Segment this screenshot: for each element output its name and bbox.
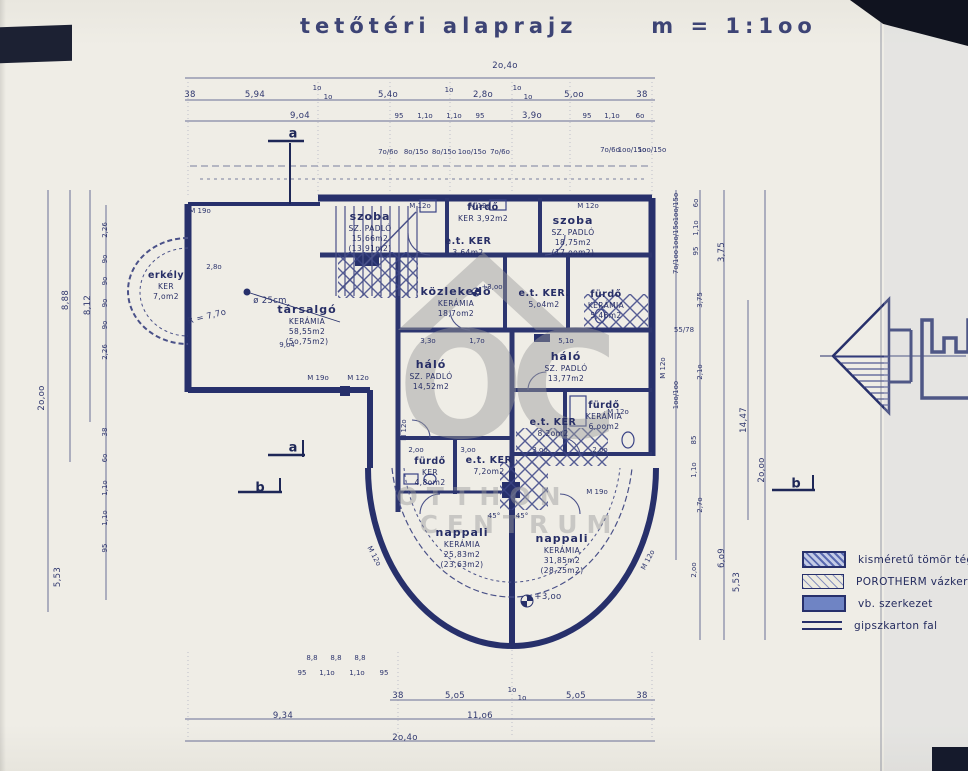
- room-label-furdo-mid: fürdőKERÁMIA5,46m2: [588, 289, 624, 321]
- dim: 38: [184, 90, 195, 100]
- room-label-furdo-bottom: fürdőKER4,8om2: [414, 456, 445, 488]
- dim: 95: [692, 247, 700, 256]
- window-size: 8o/15o: [404, 148, 428, 156]
- dim: 1,1o: [349, 669, 364, 677]
- room-label-et-right: e.t. KER8,2om2: [530, 417, 577, 439]
- dim: 8,8: [330, 654, 341, 662]
- dim: 3,75: [717, 242, 727, 262]
- wall-mark: M 19o: [586, 488, 607, 496]
- room-label-tarsalgo: társalgóKERÁMIA58,55m2(5o,75m2): [277, 303, 336, 347]
- dim: 95: [395, 112, 404, 120]
- dim: 9o: [101, 255, 109, 264]
- legend-label: POROTHERM vázkerámia: [856, 576, 968, 588]
- dim: 8,8: [354, 654, 365, 662]
- dim: 2o,oo: [37, 385, 47, 410]
- wall-mark: M 19o: [189, 207, 210, 215]
- dim: 38: [636, 691, 647, 701]
- dim: 1o: [508, 686, 517, 694]
- dim: 3,oo: [460, 446, 475, 454]
- dim: 1o: [324, 93, 333, 101]
- dim: 6,o9: [717, 548, 727, 568]
- scan-artifact-top-left: [0, 25, 72, 64]
- window-size: 1oo/15o: [458, 148, 487, 156]
- dim: 6o: [636, 112, 645, 120]
- wall-mark: M 19o: [307, 374, 328, 382]
- dim: 2,1o: [696, 364, 704, 379]
- scan-artifact-bottom-right: [932, 747, 968, 771]
- section-mark-a-bottom: a: [289, 441, 298, 456]
- dim: 5,oo: [564, 90, 584, 100]
- drywall-line-swatch-icon: [802, 621, 842, 630]
- dim: 3,75: [696, 292, 704, 308]
- section-mark-b-right: b: [791, 477, 800, 492]
- dim-top-total: 2o,4o: [492, 61, 517, 71]
- window-size: 7o/6o: [378, 148, 398, 156]
- dim: 5,o5: [445, 691, 465, 701]
- window-size: 7o/6o: [490, 148, 510, 156]
- wall-mark: M 12o: [400, 419, 408, 440]
- dim: 1,7o: [469, 337, 484, 345]
- window-size: 55/78: [674, 326, 694, 334]
- scan-margin-tint: [884, 0, 968, 771]
- dim: 38: [636, 90, 647, 100]
- dim: 2,oo: [592, 446, 607, 454]
- window-size: 1oo/15o: [672, 193, 680, 222]
- dim: 1,1o: [446, 112, 461, 120]
- dim: 9o: [101, 299, 109, 308]
- dim: 3,3o: [420, 337, 435, 345]
- room-label-et-bottom: e.t. KER7,2om2: [466, 455, 513, 477]
- dim: 2,26: [101, 222, 109, 238]
- dim: 9,o4: [279, 341, 294, 349]
- legend-item-porotherm: POROTHERM vázkerámia: [802, 574, 968, 589]
- dim: 2,oo: [690, 562, 698, 577]
- legend-label: kisméretű tömör tégla: [858, 554, 968, 566]
- porotherm-hatch-swatch-icon: [802, 574, 844, 589]
- dim: 1,1o: [692, 220, 700, 235]
- dim: 5,o5: [566, 691, 586, 701]
- wall-mark: M 12o: [577, 202, 598, 210]
- dim: 8,12: [83, 295, 93, 315]
- dim: 9,o4: [290, 111, 310, 121]
- dim: 1,1o: [604, 112, 619, 120]
- dim: 2,oo: [408, 446, 423, 454]
- scan-edge-shadow: [0, 0, 6, 771]
- dim: 1o: [445, 86, 454, 94]
- room-label-erkely: erkélyKER7,om2: [148, 270, 184, 302]
- extension-lines: [188, 82, 652, 738]
- dim: 2,7o: [696, 497, 704, 512]
- legend-item-drywall: gipszkarton fal: [802, 618, 968, 633]
- dim: 95: [476, 112, 485, 120]
- level-mark: +3,oo: [534, 592, 561, 602]
- dim: 95: [101, 544, 109, 553]
- dim: 3,oo: [532, 446, 547, 454]
- dim: 1,1o: [101, 510, 109, 525]
- dim: 5,53: [732, 572, 742, 592]
- dim: 9,34: [273, 711, 293, 721]
- roof-projection-lines: [190, 166, 652, 179]
- dim: 95: [298, 669, 307, 677]
- window-size: 1oo/1oo: [672, 381, 680, 409]
- dim: 8,8: [306, 654, 317, 662]
- angle-mark: 45°: [516, 512, 528, 520]
- window-size: 8o/15o: [432, 148, 456, 156]
- dim: 5,53: [53, 567, 63, 587]
- room-label-et-top: e.t. KER3,64m2: [445, 236, 492, 258]
- wall-mark: M 12o: [659, 357, 667, 378]
- section-mark-a-top: a: [289, 127, 298, 142]
- level-mark: +3,oo: [481, 283, 502, 291]
- dim: 1,1o: [417, 112, 432, 120]
- section-mark-b-left: b: [255, 481, 264, 496]
- dim: 1o: [313, 84, 322, 92]
- dim: 14,47: [739, 407, 749, 433]
- window-size: 7o/1oo: [672, 250, 680, 274]
- dim: 2o,oo: [757, 457, 767, 482]
- scan-fold-crease: [880, 0, 882, 771]
- dim: 9o: [101, 277, 109, 286]
- dim: 3,9o: [522, 111, 542, 121]
- brick-hatch-swatch-icon: [802, 551, 846, 568]
- wall-mark: M 12o: [607, 408, 628, 416]
- dim: 1,1o: [101, 480, 109, 495]
- legend-item-brick: kisméretű tömör tégla: [802, 552, 968, 567]
- room-label-szoba-right: szobaSZ. PADLÓ18,75m2(17,oom2): [551, 214, 594, 258]
- dim-bottom-total: 2o,4o: [392, 733, 417, 743]
- dim: 38: [101, 428, 109, 437]
- dim: 95: [380, 669, 389, 677]
- dim: 11,o6: [467, 711, 493, 721]
- column-annotation: ø 25cm: [253, 296, 286, 306]
- window-size: 1oo/15o: [672, 221, 680, 250]
- room-label-nappali-right: nappaliKERÁMIA31,85m2(28,25m2): [536, 532, 589, 576]
- room-label-et-mid: e.t. KER.5,o4m2: [519, 288, 570, 310]
- dim: 5,4o: [378, 90, 398, 100]
- dim: 1o: [513, 84, 522, 92]
- dim: 2,8o: [473, 90, 493, 100]
- legend-label: vb. szerkezet: [858, 598, 933, 610]
- dim: 1o: [524, 93, 533, 101]
- dim: 2,8o: [206, 263, 221, 271]
- room-label-halo-left: hálóSZ. PADLÓ14,52m2: [409, 358, 452, 392]
- dim: 1o: [518, 694, 527, 702]
- legend-label: gipszkarton fal: [854, 620, 937, 632]
- wall-mark: M 12o: [409, 202, 430, 210]
- dim: 5,94: [245, 90, 265, 100]
- dim: 8,88: [61, 290, 71, 310]
- page-title: tetőtéri alaprajz m = 1:1oo: [300, 14, 817, 38]
- concrete-swatch-icon: [802, 595, 846, 612]
- dim: 85: [690, 436, 698, 445]
- dim: 95: [583, 112, 592, 120]
- dim: 2,26: [101, 344, 109, 360]
- wall-mark: M 12o: [347, 374, 368, 382]
- legend: kisméretű tömör tégla POROTHERM vázkerám…: [802, 552, 968, 640]
- room-label-nappali-left: nappaliKERÁMIA25,83m2(23,63m2): [436, 526, 489, 570]
- dim: 5,1o: [558, 337, 573, 345]
- window-size: 1oo/15o: [638, 146, 667, 154]
- dim: 9o: [101, 321, 109, 330]
- dim: 1,1o: [690, 462, 698, 477]
- wall-mark: M 12o: [469, 202, 490, 210]
- dim: 6o: [692, 199, 700, 208]
- dim: 6o: [101, 454, 109, 463]
- dimension-lines: [48, 78, 765, 741]
- dim: 1,1o: [319, 669, 334, 677]
- room-label-szoba-left: szobaSZ. PADLÓ15,66m2(13,91m2): [348, 210, 391, 254]
- floor-plan-scan: OC OTTHON CENTRUM tetőtéri alaprajz m = …: [0, 0, 968, 771]
- legend-item-concrete: vb. szerkezet: [802, 596, 968, 611]
- room-label-halo-right: hálóSZ. PADLÓ13,77m2: [544, 350, 587, 384]
- angle-mark: 45°: [488, 512, 500, 520]
- dim: 38: [392, 691, 403, 701]
